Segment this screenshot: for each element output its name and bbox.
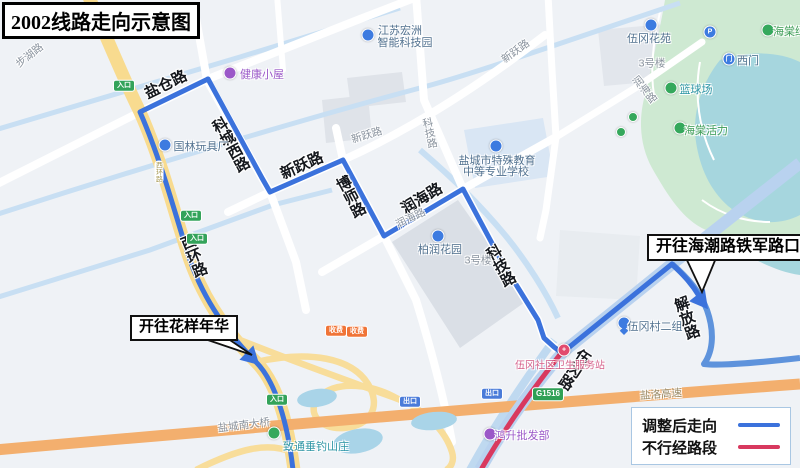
toll-badge: 收费 <box>346 326 368 338</box>
label-building-3-b: 3号楼 <box>465 255 492 266</box>
entrance-badge: 入口 <box>113 80 135 92</box>
poi-ximen: 西门 <box>737 52 759 68</box>
poi-haitang-vitality: 海棠活力 <box>684 122 728 138</box>
page-title: 2002线路走向示意图 <box>2 2 200 39</box>
callout-huayang: 开往花样年华 <box>130 315 238 341</box>
poi-school-line2: 中等专业学校 <box>463 163 529 179</box>
map-viewport: 盐仓路 科城西路 新跃路 博师路 润海路 科技路 西环路 伍冈路 解放路 步湖路… <box>0 0 800 468</box>
basketball-court-icon[interactable] <box>665 82 678 95</box>
poi-guolin: 国林玩具厂 <box>174 138 229 154</box>
poi-wugang-estate: 伍冈花苑 <box>627 30 671 46</box>
label-building-3-a: 3号楼 <box>639 58 666 69</box>
legend-label-adjusted: 调整后走向 <box>642 415 717 436</box>
parking-icon[interactable]: P <box>704 26 717 39</box>
poi-fishing: 致通垂钓山庄 <box>283 438 349 454</box>
legend-row-skipped: 不行经路段 <box>642 436 780 458</box>
poi-wugang-village: 伍冈村二组 <box>628 318 683 334</box>
exit-badge: 出口 <box>481 388 503 400</box>
poi-basketball: 篮球场 <box>680 81 713 97</box>
exit-badge: 出口 <box>399 396 421 408</box>
park-poi-icon[interactable] <box>616 127 626 137</box>
road-plate-xihuan: 西环路 <box>155 161 164 184</box>
park-poi-icon[interactable] <box>628 112 638 122</box>
legend-label-skipped: 不行经路段 <box>642 437 717 458</box>
entrance-badge: 入口 <box>180 210 202 222</box>
poi-bairun: 柏润花园 <box>418 241 462 257</box>
map-pin-icon[interactable] <box>224 67 237 80</box>
factory-icon[interactable] <box>159 139 172 152</box>
fishing-resort-icon[interactable] <box>268 427 281 440</box>
legend-row-adjusted: 调整后走向 <box>642 414 780 436</box>
poi-wholesale: 鸿升批发部 <box>495 427 550 443</box>
callout-haichao: 开往海潮路铁军路口 <box>647 234 800 261</box>
school-icon[interactable] <box>490 140 503 153</box>
tech-park-icon[interactable] <box>362 29 375 42</box>
legend-swatch-skipped <box>738 445 780 450</box>
toll-badge: 收费 <box>325 325 347 337</box>
legend-swatch-adjusted <box>738 423 780 428</box>
poi-haitang-island: 海棠绿岛 <box>773 23 800 39</box>
clinic-icon[interactable]: + <box>558 344 571 357</box>
poi-clinic: 伍冈社区卫生服务站 <box>515 357 605 372</box>
entrance-badge: 入口 <box>266 394 288 406</box>
highway-number-badge: G1516 <box>532 387 564 401</box>
entrance-badge: 入口 <box>186 233 208 245</box>
map-legend: 调整后走向 不行经路段 <box>631 407 791 465</box>
poi-jiankang: 健康小屋 <box>240 66 284 82</box>
poi-hongzhou-line2: 智能科技园 <box>378 34 433 50</box>
gate-icon[interactable]: 门 <box>723 53 736 66</box>
